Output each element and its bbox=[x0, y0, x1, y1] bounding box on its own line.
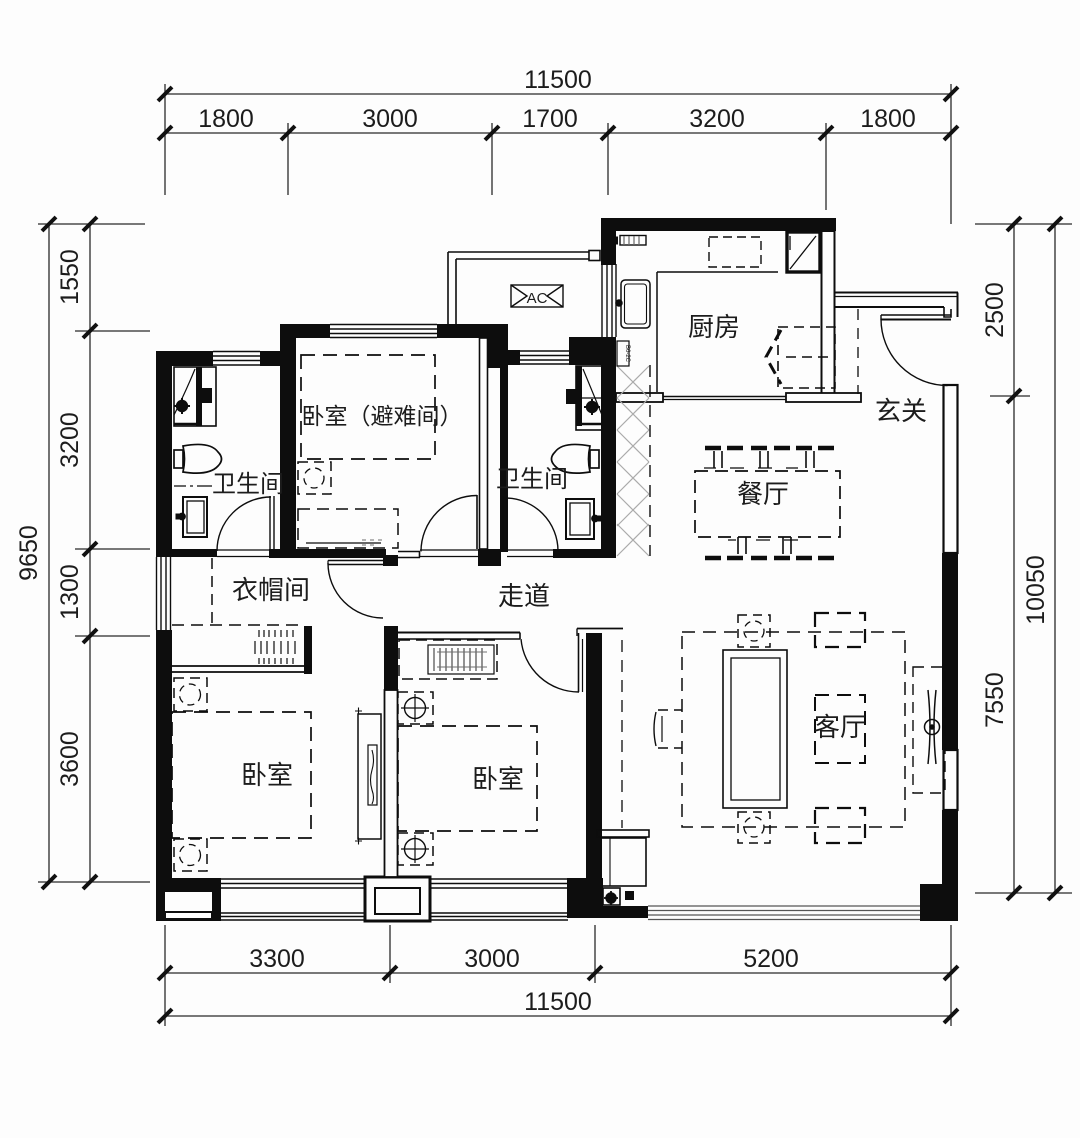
svg-text:1800: 1800 bbox=[860, 105, 916, 133]
svg-text:B6-2C: B6-2C bbox=[624, 345, 630, 363]
svg-text:卫生间: 卫生间 bbox=[496, 466, 568, 493]
svg-text:卧室（避难间）: 卧室（避难间） bbox=[302, 403, 463, 429]
svg-text:卧室: 卧室 bbox=[472, 764, 524, 794]
svg-text:5200: 5200 bbox=[743, 945, 799, 973]
svg-text:卧室: 卧室 bbox=[241, 760, 293, 790]
svg-text:1300: 1300 bbox=[56, 564, 84, 620]
svg-text:3600: 3600 bbox=[56, 731, 84, 787]
svg-text:3000: 3000 bbox=[464, 945, 520, 973]
svg-text:2500: 2500 bbox=[981, 282, 1009, 338]
svg-text:3000: 3000 bbox=[362, 105, 418, 133]
svg-text:AC: AC bbox=[527, 290, 548, 307]
svg-text:11500: 11500 bbox=[524, 66, 592, 94]
svg-text:餐厅: 餐厅 bbox=[737, 479, 789, 509]
svg-text:客厅: 客厅 bbox=[814, 712, 866, 742]
svg-text:卫生间: 卫生间 bbox=[212, 471, 284, 498]
svg-text:厨房: 厨房 bbox=[688, 312, 740, 342]
svg-text:7550: 7550 bbox=[981, 672, 1009, 728]
svg-text:走道: 走道 bbox=[498, 581, 550, 611]
svg-text:3200: 3200 bbox=[689, 105, 745, 133]
svg-text:1550: 1550 bbox=[56, 249, 84, 305]
svg-text:3200: 3200 bbox=[56, 412, 84, 468]
svg-text:10050: 10050 bbox=[1022, 555, 1050, 625]
svg-text:3300: 3300 bbox=[249, 945, 305, 973]
svg-text:9650: 9650 bbox=[15, 525, 43, 581]
svg-text:11500: 11500 bbox=[524, 988, 592, 1016]
svg-text:玄关: 玄关 bbox=[875, 396, 927, 426]
svg-text:衣帽间: 衣帽间 bbox=[232, 575, 310, 605]
svg-text:1800: 1800 bbox=[198, 105, 254, 133]
svg-text:1700: 1700 bbox=[522, 105, 578, 133]
